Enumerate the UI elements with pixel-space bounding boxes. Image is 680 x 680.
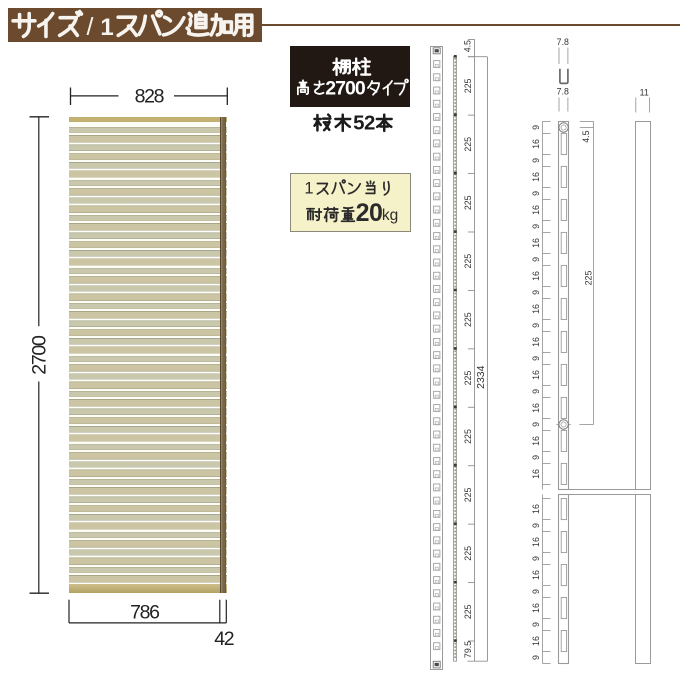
svg-text:16: 16 <box>531 403 541 413</box>
svg-text:828: 828 <box>135 86 164 108</box>
svg-text:16: 16 <box>531 537 541 547</box>
svg-text:9: 9 <box>531 323 541 328</box>
svg-text:225: 225 <box>463 429 473 444</box>
svg-text:7.8: 7.8 <box>557 87 569 97</box>
svg-text:16: 16 <box>531 603 541 613</box>
svg-text:1: 1 <box>100 14 113 41</box>
svg-text:2700: 2700 <box>28 335 50 375</box>
svg-text:9: 9 <box>531 622 541 627</box>
svg-text:9: 9 <box>531 589 541 594</box>
svg-text:9: 9 <box>531 389 541 394</box>
svg-text:2700: 2700 <box>325 77 366 99</box>
svg-text:225: 225 <box>463 195 473 210</box>
svg-text:7.8: 7.8 <box>557 37 569 47</box>
svg-text:16: 16 <box>531 172 541 182</box>
svg-text:225: 225 <box>463 371 473 386</box>
svg-text:16: 16 <box>531 139 541 149</box>
svg-text:9: 9 <box>531 422 541 427</box>
svg-text:225: 225 <box>463 487 473 502</box>
svg-text:/: / <box>87 13 94 41</box>
svg-text:9: 9 <box>531 556 541 561</box>
svg-text:16: 16 <box>531 570 541 580</box>
svg-text:9: 9 <box>531 455 541 460</box>
svg-text:225: 225 <box>463 312 473 327</box>
svg-text:16: 16 <box>531 271 541 281</box>
svg-text:79.5: 79.5 <box>463 641 473 658</box>
svg-text:16: 16 <box>531 337 541 347</box>
svg-text:9: 9 <box>531 224 541 229</box>
svg-text:16: 16 <box>531 205 541 215</box>
svg-text:16: 16 <box>531 238 541 248</box>
svg-text:9: 9 <box>531 257 541 262</box>
svg-text:4.5: 4.5 <box>463 40 473 52</box>
svg-text:225: 225 <box>463 254 473 269</box>
svg-text:2334: 2334 <box>475 365 487 389</box>
svg-text:20: 20 <box>356 199 383 227</box>
svg-text:4.5: 4.5 <box>581 130 591 142</box>
svg-text:16: 16 <box>531 636 541 646</box>
svg-text:16: 16 <box>531 304 541 314</box>
svg-text:225: 225 <box>463 546 473 561</box>
svg-text:9: 9 <box>531 125 541 130</box>
svg-text:9: 9 <box>531 523 541 528</box>
svg-text:16: 16 <box>531 504 541 514</box>
svg-text:9: 9 <box>531 191 541 196</box>
svg-text:9: 9 <box>531 290 541 295</box>
svg-text:9: 9 <box>531 655 541 660</box>
svg-text:16: 16 <box>531 469 541 479</box>
svg-text:225: 225 <box>463 604 473 619</box>
svg-text:9: 9 <box>531 158 541 163</box>
svg-text:786: 786 <box>130 601 159 623</box>
svg-text:11: 11 <box>640 87 649 97</box>
svg-text:kg: kg <box>382 207 398 224</box>
svg-text:225: 225 <box>463 137 473 152</box>
svg-text:225: 225 <box>463 78 473 93</box>
svg-text:225: 225 <box>583 271 593 286</box>
svg-text:16: 16 <box>531 436 541 446</box>
svg-text:52: 52 <box>353 112 375 135</box>
svg-text:42: 42 <box>214 628 234 650</box>
svg-text:9: 9 <box>531 356 541 361</box>
svg-text:16: 16 <box>531 370 541 380</box>
svg-text:1: 1 <box>304 180 313 198</box>
